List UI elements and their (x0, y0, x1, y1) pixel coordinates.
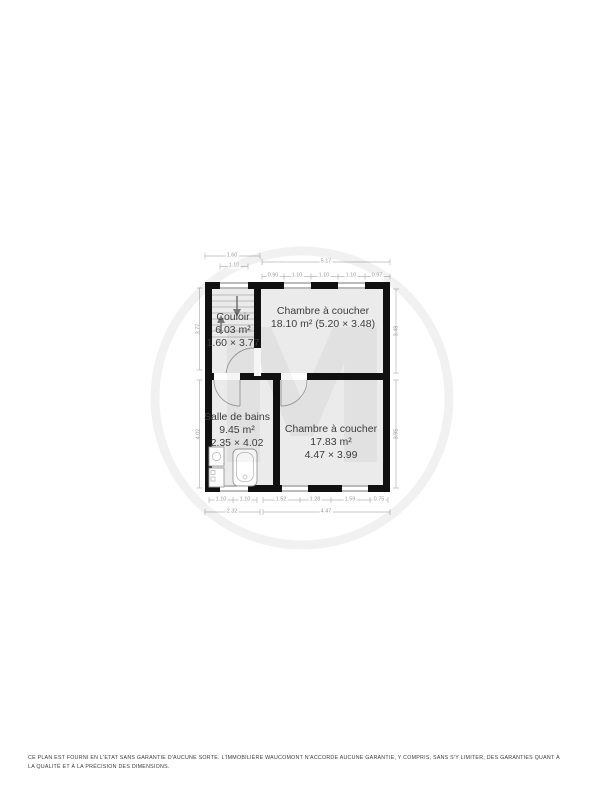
dim-right-top: 3.48 (394, 325, 400, 338)
dim-top-seg-3: 1.10 (318, 273, 331, 279)
dim-bottom-right-seg-1: 1.52 (275, 497, 288, 503)
floor-plan-page: M Couloir 6.03 m² 1.60 × 3.77 Chambre à … (0, 0, 603, 800)
dim-top-seg-5: 0.97 (371, 273, 384, 279)
window-bedroom1-right (338, 282, 365, 289)
dim-top-seg-1: 0.90 (267, 273, 280, 279)
dim-bottom-left-total: 2.32 (226, 509, 239, 515)
room-dims: 2.35 × 4.02 (204, 436, 270, 449)
room-area-dims: 18.10 m² (5.20 × 3.48) (271, 318, 375, 331)
dim-top-seg-2: 1.10 (291, 273, 304, 279)
dim-bottom-right-seg-3: 1.59 (344, 497, 357, 503)
room-label-couloir: Couloir 6.03 m² 1.60 × 3.77 (207, 311, 260, 349)
window-bedroom1-left (284, 282, 311, 289)
dim-top-seg-4: 1.10 (345, 273, 358, 279)
room-name: Couloir (207, 311, 260, 324)
dim-top-bedroom-total: 5.17 (320, 259, 333, 265)
room-label-bathroom: Salle de bains 9.45 m² 2.35 × 4.02 (204, 411, 270, 449)
dim-left-top: 3.77 (196, 323, 202, 336)
dim-bottom-right-seg-2: 1.28 (309, 497, 322, 503)
room-dims: 4.47 × 3.99 (285, 448, 377, 461)
dim-right-bottom: 3.95 (394, 428, 400, 441)
room-area: 9.45 m² (204, 424, 270, 437)
room-name: Chambre à coucher (271, 305, 375, 318)
disclaimer-text: Ce plan est fourni en l'etat sans garant… (28, 754, 568, 772)
dim-top-couloir-total: 1.60 (226, 253, 239, 259)
room-area: 17.83 m² (285, 436, 377, 449)
room-area: 6.03 m² (207, 324, 260, 337)
room-dims: 1.60 × 3.77 (207, 336, 260, 349)
dim-left-bottom: 4.02 (196, 428, 202, 441)
dim-bottom-left-seg-1: 1.10 (215, 497, 228, 503)
room-name: Chambre à coucher (285, 423, 377, 436)
room-label-bedroom2: Chambre à coucher 17.83 m² 4.47 × 3.99 (285, 423, 377, 461)
watermark: M (155, 251, 449, 545)
dim-bottom-right-seg-4: 0.75 (373, 497, 386, 503)
dim-bottom-left-seg-2: 1.10 (239, 497, 252, 503)
dim-bottom-right-total: 4.47 (320, 509, 333, 515)
window-couloir (220, 282, 248, 289)
floor-plan-drawing: M (0, 0, 603, 800)
room-name: Salle de bains (204, 411, 270, 424)
dim-top-couloir-window: 1.10 (228, 263, 241, 269)
room-label-bedroom1: Chambre à coucher 18.10 m² (5.20 × 3.48) (271, 305, 375, 331)
